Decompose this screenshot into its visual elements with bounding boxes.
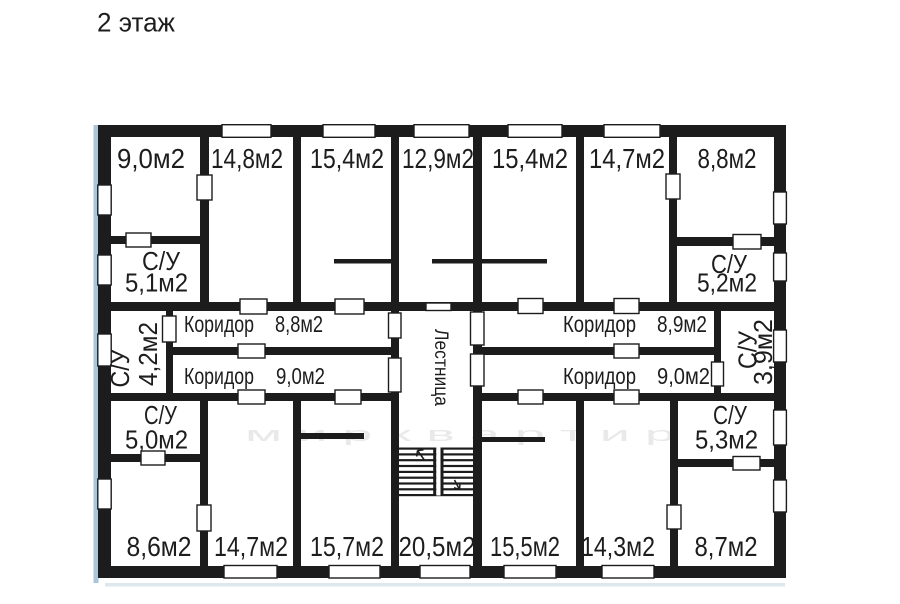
svg-text:12,9м2: 12,9м2: [402, 143, 474, 174]
svg-text:14,3м2: 14,3м2: [581, 531, 655, 562]
svg-text:3,9м2: 3,9м2: [748, 319, 778, 385]
svg-text:5,2м2: 5,2м2: [697, 268, 757, 298]
svg-text:Лестница: Лестница: [430, 329, 452, 406]
svg-text:4,2м2: 4,2м2: [133, 322, 163, 386]
svg-text:С/У: С/У: [105, 349, 135, 387]
svg-text:8,9м2: 8,9м2: [657, 311, 707, 337]
svg-text:8,8м2: 8,8м2: [698, 143, 757, 174]
svg-text:14,7м2: 14,7м2: [214, 531, 288, 562]
svg-text:Коридор: Коридор: [563, 311, 636, 337]
svg-text:15,4м2: 15,4м2: [310, 143, 384, 174]
svg-text:15,4м2: 15,4м2: [492, 143, 568, 174]
svg-text:9,0м2: 9,0м2: [657, 363, 710, 389]
svg-text:8,6м2: 8,6м2: [127, 531, 192, 562]
svg-text:Коридор: Коридор: [184, 311, 254, 337]
svg-text:Коридор: Коридор: [184, 363, 254, 389]
svg-text:14,8м2: 14,8м2: [211, 143, 283, 174]
svg-text:5,3м2: 5,3м2: [695, 425, 758, 455]
svg-text:2 этаж: 2 этаж: [97, 8, 175, 38]
svg-text:15,7м2: 15,7м2: [310, 531, 384, 562]
svg-text:8,7м2: 8,7м2: [695, 531, 758, 562]
svg-text:Коридор: Коридор: [563, 363, 636, 389]
svg-text:9,0м2: 9,0м2: [276, 363, 325, 389]
svg-text:5,1м2: 5,1м2: [125, 268, 188, 298]
svg-text:15,5м2: 15,5м2: [490, 531, 560, 562]
svg-text:5,0м2: 5,0м2: [125, 425, 188, 455]
svg-text:20,5м2: 20,5м2: [399, 531, 476, 562]
svg-text:14,7м2: 14,7м2: [589, 143, 665, 174]
svg-text:9,0м2: 9,0м2: [117, 143, 185, 174]
svg-text:8,8м2: 8,8м2: [275, 311, 323, 337]
